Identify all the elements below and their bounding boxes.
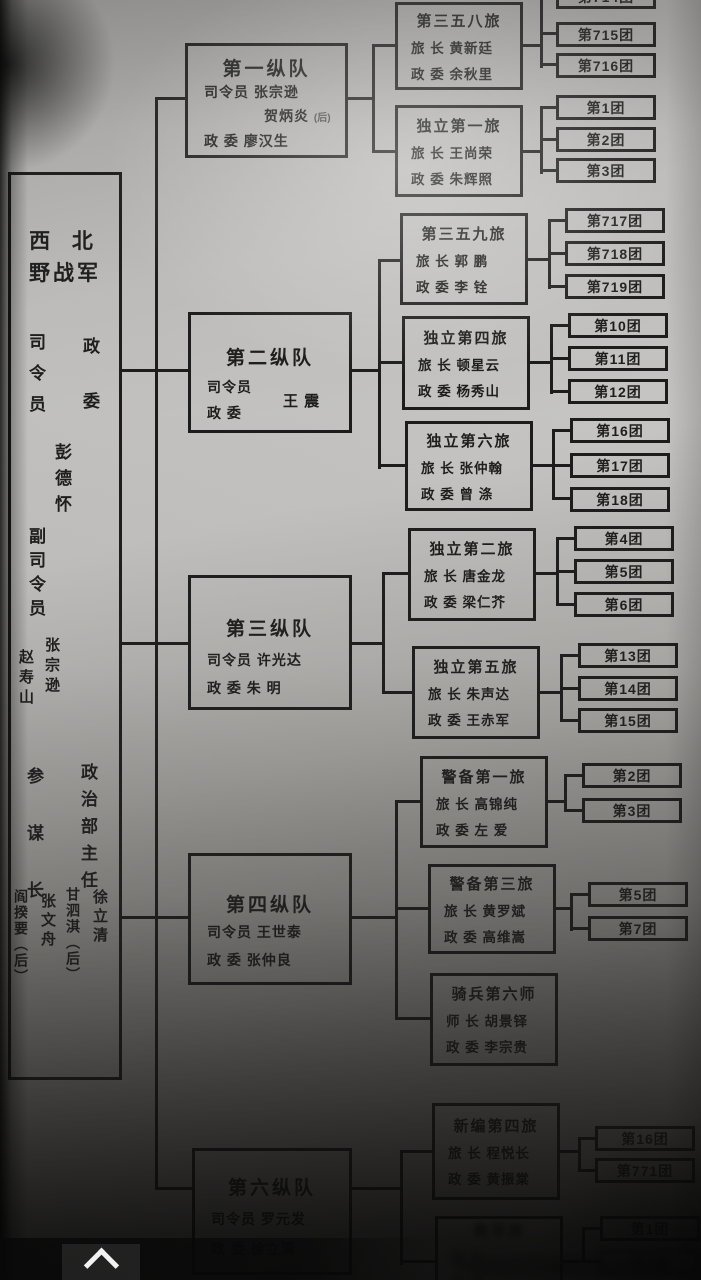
regiment-box: 第12团 (568, 379, 668, 404)
column-leader-line: 政 委 朱 明 (207, 678, 282, 698)
brigade-commissar: 政 委 (440, 1273, 558, 1280)
connector (378, 361, 402, 364)
brigade-commander: 旅 长 唐金龙 (413, 565, 531, 585)
connector (540, 691, 560, 694)
regiment-box: 第717团 (565, 208, 665, 233)
brigade-commander: 旅 长 张仲翰 (410, 457, 528, 477)
connector (548, 219, 565, 222)
connector (552, 464, 570, 467)
photographed-org-chart: 西 北 野战军 司令员 政委 彭德怀 副司令员 张宗逊 赵寿山 参谋长 政治部主… (0, 0, 701, 1280)
leader-name: 贺炳炎 (264, 108, 309, 124)
connector (400, 1150, 403, 1265)
connector (352, 916, 395, 919)
regiment-box: 第10团 (568, 313, 668, 338)
connector (382, 572, 408, 575)
connector (582, 1227, 585, 1263)
connector (528, 258, 548, 261)
regiment-box: 第3团 (582, 798, 682, 823)
regiment-box: 第17团 (570, 453, 670, 478)
regiment-box: 第16团 (570, 418, 670, 443)
brigade-title: 独立第五旅 (417, 656, 535, 677)
brigade-title: 独立第六旅 (410, 430, 528, 451)
regiment-box: 第3团 (556, 158, 656, 183)
regiment-box: 第15团 (578, 708, 678, 733)
regiment-box: 第1团 (556, 95, 656, 120)
political-director-name: 徐立清 (89, 889, 110, 946)
brigade-commander: 旅 长 黄罗斌 (433, 900, 551, 920)
brigade-box: 独立第五旅 旅 长 朱声达 政 委 王赤军 (412, 646, 540, 739)
brigade-commissar: 政 委 梁仁芥 (413, 591, 531, 611)
brigade-title: 新编第四旅 (437, 1115, 555, 1136)
connector (395, 800, 398, 1020)
connector (556, 537, 574, 540)
regiment-box: 第719团 (565, 274, 665, 299)
brigade-box-blurred: 教导旅 旅 长 政 委 (435, 1216, 563, 1280)
brigade-title: 第三五八旅 (400, 10, 518, 31)
brigade-title: 教导旅 (440, 1220, 558, 1241)
army-name-line1: 西 北 (11, 225, 119, 255)
regiment-box: 第18团 (570, 487, 670, 512)
column-leader-line: 司令员 罗元发 (211, 1209, 306, 1229)
deputy-commander-label: 副司令员 (23, 527, 48, 623)
brigade-commander: 旅 长 程悦长 (437, 1142, 555, 1162)
connector (536, 572, 556, 575)
regiment-box: 第7团 (588, 916, 688, 941)
connector (395, 907, 428, 910)
brigade-commissar: 政 委 王赤军 (417, 709, 535, 729)
connector (122, 369, 188, 372)
column-title: 第一纵队 (188, 54, 345, 81)
connector (372, 44, 395, 47)
regiment-box: 第4团 (574, 526, 674, 551)
deputy-commander-name: 张宗逊 (41, 637, 62, 697)
connector (540, 138, 556, 141)
brigade-commander: 师 长 胡景铎 (435, 1010, 553, 1030)
connector (378, 464, 405, 467)
connector (540, 106, 556, 109)
regiment-box: 第714团 (556, 0, 656, 9)
connector (400, 1260, 435, 1263)
column-title: 第三纵队 (191, 614, 349, 641)
connector (395, 800, 420, 803)
regiment-box: 第13团 (578, 643, 678, 668)
connector (552, 429, 570, 432)
brigade-commissar: 政 委 余秋里 (400, 63, 518, 83)
brigade-commander: 旅 长 顿星云 (407, 354, 525, 374)
column-leader-line: 政 委 廖汉生 (204, 131, 289, 151)
brigade-commissar: 政 委 黄振棠 (437, 1168, 555, 1188)
connector (122, 642, 188, 645)
connector (352, 1187, 400, 1190)
connector (560, 654, 578, 657)
army-name-line2: 野战军 (11, 257, 119, 287)
brigade-box: 警备第一旅 旅 长 高锦纯 政 委 左 爱 (420, 756, 548, 848)
connector (155, 1187, 192, 1190)
brigade-commissar: 政 委 曾 涤 (410, 483, 528, 503)
commissar-label: 政 委 (207, 403, 242, 423)
column-leader-line: 司令员 许光达 (207, 650, 302, 670)
brigade-box: 独立第一旅 旅 长 王尚荣 政 委 朱辉照 (395, 105, 523, 197)
connector (560, 719, 578, 722)
connector (372, 150, 395, 153)
connector (382, 572, 385, 694)
commander-label: 司令员 (23, 333, 48, 426)
political-director-name: 甘泗淇（后） (63, 887, 83, 983)
connector (556, 603, 574, 606)
brigade-title: 警备第三旅 (433, 873, 551, 894)
column-title: 第二纵队 (191, 343, 349, 370)
connector (578, 1137, 595, 1140)
connector (348, 97, 372, 100)
connector (548, 800, 564, 803)
brigade-commander: 旅 长 王尚荣 (400, 142, 518, 162)
regiment-box: 第16团 (595, 1126, 695, 1151)
column-title: 第四纵队 (191, 890, 349, 917)
connector (556, 570, 574, 573)
brigade-box: 骑兵第六师 师 长 胡景铎 政 委 李宗贵 (430, 973, 558, 1066)
brigade-box: 独立第二旅 旅 长 唐金龙 政 委 梁仁芥 (408, 528, 536, 621)
connector (564, 774, 582, 777)
brigade-commander: 旅 长 朱声达 (417, 683, 535, 703)
brigade-commissar: 政 委 高维嵩 (433, 926, 551, 946)
connector (155, 97, 188, 100)
connector (523, 150, 540, 153)
chief-of-staff-name: 阎揆要（后） (11, 889, 31, 985)
deputy-commander-name: 赵寿山 (15, 649, 36, 709)
column-4-box: 第四纵队 司令员 王世泰 政 委 张仲良 (188, 853, 352, 985)
connector (564, 774, 567, 812)
brigade-title: 独立第一旅 (400, 115, 518, 136)
brigade-box: 第三五九旅 旅 长 郭 鹏 政 委 李 铨 (400, 213, 528, 305)
connector (352, 369, 378, 372)
brigade-commander: 旅 长 高锦纯 (425, 793, 543, 813)
regiment-box: 第1团 (600, 1216, 700, 1241)
brigade-commander: 旅 长 黄新廷 (400, 37, 518, 57)
column-leader-line: 政 委 张仲良 (207, 950, 292, 970)
commander-label: 司令员 (207, 377, 252, 397)
connector (550, 324, 568, 327)
brigade-box: 独立第四旅 旅 长 顿星云 政 委 杨秀山 (402, 316, 530, 410)
chevron-up-icon (83, 1247, 118, 1280)
connector (560, 1150, 578, 1153)
connector (564, 809, 582, 812)
regiment-box: 第14团 (578, 676, 678, 701)
regiment-box: 第11团 (568, 346, 668, 371)
connector (563, 1260, 582, 1263)
connector (378, 259, 381, 469)
connector (533, 464, 552, 467)
connector (582, 1260, 600, 1263)
brigade-box: 新编第四旅 旅 长 程悦长 政 委 黄振棠 (432, 1103, 560, 1200)
leader-suffix: (后) (314, 113, 331, 124)
connector (352, 642, 382, 645)
brigade-title: 骑兵第六师 (435, 983, 553, 1004)
connector (556, 907, 570, 910)
brigade-commissar: 政 委 李宗贵 (435, 1036, 553, 1056)
brigade-title: 独立第四旅 (407, 327, 525, 348)
connector (570, 893, 588, 896)
commissar-label: 政委 (77, 337, 102, 447)
column-6-box: 第六纵队 司令员 罗元发 政 委 徐立清 (192, 1148, 352, 1275)
connector (540, 169, 556, 172)
connector (382, 691, 412, 694)
connector (550, 357, 568, 360)
column-leader-line: 司令员 张宗逊 (204, 82, 299, 102)
brigade-commissar: 政 委 朱辉照 (400, 168, 518, 188)
regiment-box: 第2团 (556, 127, 656, 152)
connector (550, 390, 568, 393)
brigade-commander: 旅 长 (440, 1247, 558, 1267)
connector (378, 259, 400, 262)
column-leader-line: 贺炳炎 (后) (264, 106, 331, 126)
collapse-button[interactable] (62, 1244, 140, 1280)
brigade-box: 独立第六旅 旅 长 张仲翰 政 委 曾 涤 (405, 421, 533, 511)
brigade-title: 第三五九旅 (405, 223, 523, 244)
connector (570, 893, 573, 931)
connector (548, 285, 565, 288)
regiment-box: 第716团 (556, 53, 656, 78)
connector (372, 44, 375, 153)
column-leader-line: 司令员 王世泰 (207, 922, 302, 942)
connector (540, 32, 556, 35)
connector (552, 497, 570, 500)
regiment-box: 第718团 (565, 241, 665, 266)
connector (122, 916, 188, 919)
connector (540, 63, 556, 66)
column-3-box: 第三纵队 司令员 许光达 政 委 朱 明 (188, 575, 352, 710)
chief-of-staff-name: 张文舟 (37, 893, 58, 950)
connector (578, 1137, 581, 1172)
regiment-box: 第771团 (595, 1158, 695, 1183)
column-title: 第六纵队 (195, 1173, 349, 1200)
brigade-box: 警备第三旅 旅 长 黄罗斌 政 委 高维嵩 (428, 864, 556, 954)
connector (578, 1169, 595, 1172)
regiment-box: 第5团 (588, 882, 688, 907)
brigade-commissar: 政 委 杨秀山 (407, 380, 525, 400)
connector (548, 252, 565, 255)
regiment-box: 第2团 (582, 763, 682, 788)
commander-name: 彭德怀 (49, 443, 74, 521)
column-1-box: 第一纵队 司令员 张宗逊 贺炳炎 (后) 政 委 廖汉生 (185, 43, 348, 158)
connector (582, 1227, 600, 1230)
brigade-title: 独立第二旅 (413, 538, 531, 559)
connector (560, 687, 578, 690)
brigade-commissar: 政 委 李 铨 (405, 276, 523, 296)
column-leader-line: 政 委 徐立清 (211, 1239, 296, 1259)
connector (530, 361, 550, 364)
brigade-title: 警备第一旅 (425, 766, 543, 787)
column-2-box: 第二纵队 司令员 政 委 王 震 (188, 312, 352, 433)
regiment-box: 第5团 (574, 559, 674, 584)
connector (570, 927, 588, 930)
connector (400, 1150, 432, 1153)
regiment-box: 第2团 (600, 1250, 700, 1275)
political-director-label: 政治部主任 (75, 763, 100, 898)
regiment-box: 第715团 (556, 22, 656, 47)
connector (395, 1017, 430, 1020)
brigade-commissar: 政 委 左 爱 (425, 819, 543, 839)
army-hq-box: 西 北 野战军 司令员 政委 彭德怀 副司令员 张宗逊 赵寿山 参谋长 政治部主… (8, 172, 122, 1080)
leader-name: 王 震 (283, 390, 320, 411)
brigade-commander: 旅 长 郭 鹏 (405, 250, 523, 270)
regiment-box: 第6团 (574, 592, 674, 617)
connector (523, 44, 540, 47)
brigade-box: 第三五八旅 旅 长 黄新廷 政 委 余秋里 (395, 2, 523, 90)
